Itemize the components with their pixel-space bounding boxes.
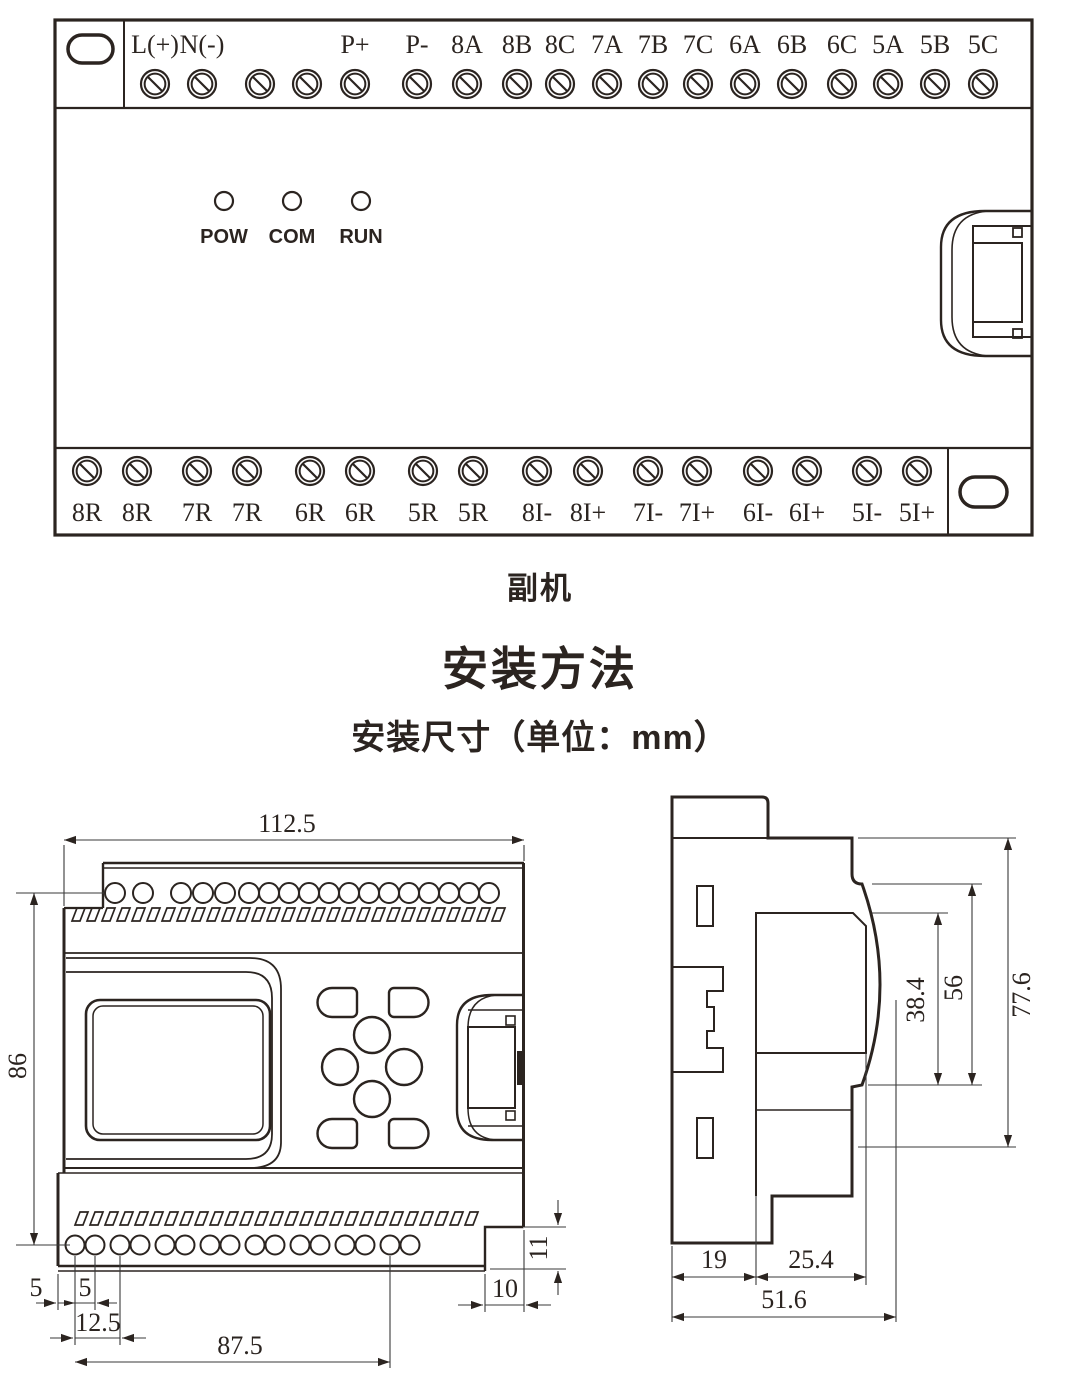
terminal-label: 7R xyxy=(232,498,263,527)
terminal-label: 5I+ xyxy=(899,498,935,527)
run-led-icon xyxy=(352,192,370,210)
side-dimension-labels: 38.4 56 77.6 19 25.4 51.6 xyxy=(701,972,1036,1314)
dim-edge-to-hole: 5 xyxy=(30,1273,43,1302)
terminal-label: 6A xyxy=(729,30,761,59)
terminal-label: 6R xyxy=(345,498,376,527)
hole-icon xyxy=(381,1236,400,1255)
hole-icon xyxy=(291,1236,310,1255)
terminal-label: 6I- xyxy=(743,498,773,527)
terminal-label: 5A xyxy=(872,30,904,59)
hole-icon xyxy=(86,1236,105,1255)
terminal-label: L(+) xyxy=(131,30,179,59)
terminal-label: N(-) xyxy=(180,30,225,59)
section-subtitle: 安装尺寸（单位：mm） xyxy=(0,710,1080,759)
dim-front-face: 38.4 xyxy=(901,977,930,1023)
hole-icon xyxy=(156,1236,175,1255)
hole-icon xyxy=(279,883,299,903)
mounting-slot-top-icon xyxy=(68,35,113,63)
led-label: RUN xyxy=(339,226,382,248)
dim-hole-span: 87.5 xyxy=(217,1331,263,1360)
dim-notch-width: 10 xyxy=(492,1274,518,1303)
panel-caption: 副机 xyxy=(0,563,1080,608)
hole-icon xyxy=(439,883,459,903)
terminal-label: P- xyxy=(405,30,428,59)
terminal-label: 8R xyxy=(72,498,103,527)
din-clip xyxy=(672,967,723,1072)
hole-icon xyxy=(299,883,319,903)
terminal-label: 6B xyxy=(777,30,807,59)
top-terminal-row: L(+)N(-)P+P-8A8B8C7A7B7C6A6B6C5A5B5C xyxy=(131,30,998,98)
hole-icon xyxy=(339,883,359,903)
dim-pair-pitch: 12.5 xyxy=(75,1308,121,1337)
vent-band-icon xyxy=(75,1212,478,1225)
hole-icon xyxy=(401,1236,420,1255)
inner-body xyxy=(756,913,866,1053)
hole-icon xyxy=(336,1236,355,1255)
hole-icon xyxy=(176,1236,195,1255)
expansion-port-front-icon xyxy=(457,995,523,1140)
terminal-label: P+ xyxy=(340,30,369,59)
terminal-label: 6R xyxy=(295,498,326,527)
mounting-slot-bottom-icon xyxy=(960,477,1007,507)
section-title: 安装方法 xyxy=(0,633,1080,699)
display-screen xyxy=(86,1000,270,1140)
bottom-right-notch xyxy=(485,1227,524,1271)
terminal-label: 7B xyxy=(638,30,668,59)
expansion-port-icon xyxy=(941,211,1032,356)
hole-icon xyxy=(479,883,499,903)
rail-slot-upper xyxy=(697,886,713,926)
terminal-label: 7I- xyxy=(633,498,663,527)
dim-height: 86 xyxy=(3,1053,32,1079)
vent-bands xyxy=(72,908,505,1225)
hole-icon xyxy=(399,883,419,903)
hole-icon xyxy=(105,883,125,903)
bottom-terminal-row: 8R8R7R7R6R6R5R5R8I-8I+7I-7I+6I-6I+5I-5I+ xyxy=(72,457,935,527)
vent-band-icon xyxy=(72,908,505,921)
hole-icon xyxy=(171,883,191,903)
hole-icon xyxy=(133,883,153,903)
led-label: POW xyxy=(200,226,248,248)
terminal-label: 6C xyxy=(827,30,857,59)
hole-icon xyxy=(221,1236,240,1255)
hole-icon xyxy=(419,883,439,903)
dim-depth: 51.6 xyxy=(761,1285,807,1314)
hole-icon xyxy=(459,883,479,903)
rail-slot-lower xyxy=(697,1118,713,1158)
terminal-label: 8I+ xyxy=(570,498,606,527)
side-profile xyxy=(672,797,880,1243)
dim-back-step: 19 xyxy=(701,1245,727,1274)
terminal-label: 7C xyxy=(683,30,713,59)
side-view-drawing: 38.4 56 77.6 19 25.4 51.6 xyxy=(640,780,1070,1350)
hole-icon xyxy=(215,883,235,903)
terminal-label: 6I+ xyxy=(789,498,825,527)
terminal-label: 5R xyxy=(408,498,439,527)
terminal-holes xyxy=(66,883,500,1255)
front-view-drawing: 112.5 86 5 5 12.5 87.5 10 11 xyxy=(0,785,600,1385)
keypad xyxy=(318,988,429,1148)
terminal-label: 5R xyxy=(458,498,489,527)
terminal-label: 8B xyxy=(502,30,532,59)
terminal-label: 5B xyxy=(920,30,950,59)
front-device-outline xyxy=(58,863,524,1271)
hole-icon xyxy=(259,883,279,903)
pow-led-icon xyxy=(215,192,233,210)
hole-icon xyxy=(266,1236,285,1255)
dim-total-height: 77.6 xyxy=(1007,972,1036,1018)
terminal-label: 8I- xyxy=(522,498,552,527)
hole-icon xyxy=(311,1236,330,1255)
hole-icon xyxy=(131,1236,150,1255)
terminal-label: 5C xyxy=(968,30,998,59)
com-led-icon xyxy=(283,192,301,210)
terminal-label: 8R xyxy=(122,498,153,527)
dim-front-section: 56 xyxy=(939,975,968,1001)
terminal-label: 8A xyxy=(451,30,483,59)
lock-tab-icon xyxy=(517,1051,523,1085)
terminal-label: 8C xyxy=(545,30,575,59)
hole-icon xyxy=(359,883,379,903)
hole-icon xyxy=(356,1236,375,1255)
dim-notch-height: 11 xyxy=(524,1235,553,1260)
dim-mid-step: 25.4 xyxy=(788,1245,834,1274)
hole-icon xyxy=(239,883,259,903)
terminal-label: 7R xyxy=(182,498,213,527)
hole-icon xyxy=(111,1236,130,1255)
hole-icon xyxy=(379,883,399,903)
dim-hole-pair-gap: 5 xyxy=(79,1273,92,1302)
terminal-panel-drawing: POWCOMRUN L(+)N(-)P+P-8A8B8C7A7B7C6A6B6C… xyxy=(50,15,1040,540)
dim-width: 112.5 xyxy=(258,809,316,838)
led-label: COM xyxy=(269,226,316,248)
hole-icon xyxy=(246,1236,265,1255)
terminal-label: 5I- xyxy=(852,498,882,527)
terminal-label: 7I+ xyxy=(679,498,715,527)
hole-icon xyxy=(319,883,339,903)
hole-icon xyxy=(201,1236,220,1255)
terminal-label: 7A xyxy=(591,30,623,59)
status-leds: POWCOMRUN xyxy=(200,192,383,248)
hole-icon xyxy=(193,883,213,903)
